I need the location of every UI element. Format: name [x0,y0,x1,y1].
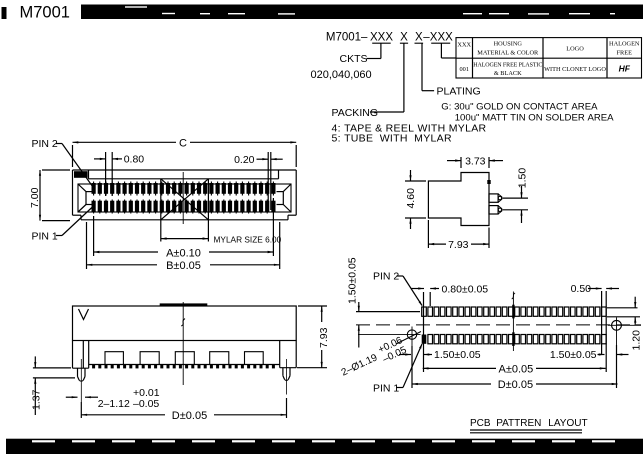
svg-text:XXX: XXX [370,32,393,44]
svg-text:0.80±0.05: 0.80±0.05 [442,283,489,295]
svg-text:HALOGEN: HALOGEN [609,41,640,48]
svg-text:WITH CLONET LOGO: WITH CLONET LOGO [544,66,606,73]
svg-text:0.80: 0.80 [124,154,145,166]
svg-text:1.50±0.05: 1.50±0.05 [347,257,359,304]
svg-text:7.93: 7.93 [318,327,330,348]
svg-text:3.73: 3.73 [465,155,486,167]
svg-text:G: 30u" GOLD ON CONTACT AREA: G: 30u" GOLD ON CONTACT AREA [441,102,598,113]
svg-text:CKTS: CKTS [340,53,368,65]
svg-text:XXX: XXX [457,42,471,49]
svg-text:LOGO: LOGO [566,46,584,53]
svg-text:XXX: XXX [430,32,453,44]
svg-text:A±0.05: A±0.05 [499,363,534,375]
svg-text:PIN 1: PIN 1 [373,383,399,395]
svg-text:A±0.10: A±0.10 [166,247,201,259]
svg-text:0.20: 0.20 [234,154,255,166]
svg-text:1.37: 1.37 [30,389,42,410]
svg-text:PIN 1: PIN 1 [32,231,58,243]
svg-text:HOUSING: HOUSING [494,41,523,48]
svg-text:MYLAR SIZE 6.00: MYLAR SIZE 6.00 [214,234,282,244]
svg-text:2–1.12: 2–1.12 [98,398,130,410]
svg-text:1.50±0.05: 1.50±0.05 [550,349,597,361]
svg-text:C: C [179,138,187,150]
svg-text:5: TUBE WITH MYLAR: 5: TUBE WITH MYLAR [332,133,452,145]
svg-text:B±0.05: B±0.05 [166,260,201,272]
svg-text:D±0.05: D±0.05 [498,379,533,391]
svg-text:HALOGEN FREE PLASTIC: HALOGEN FREE PLASTIC [473,63,542,69]
svg-text:D±0.05: D±0.05 [172,410,207,422]
svg-text:& BLACK: & BLACK [494,70,522,77]
svg-text:1.50: 1.50 [516,168,528,189]
svg-text:LAYOUT: LAYOUT [548,418,587,429]
svg-text:PATTREN: PATTREN [496,418,541,429]
svg-text:001: 001 [460,66,469,73]
svg-text:PLATING: PLATING [437,86,481,98]
svg-text:7.00: 7.00 [29,187,41,208]
svg-text:PACKING: PACKING [332,107,378,119]
svg-text:1.50±0.05: 1.50±0.05 [434,349,481,361]
svg-text:7.93: 7.93 [448,239,469,251]
svg-text:HF: HF [619,64,631,74]
svg-text:PCB: PCB [470,418,491,429]
svg-text:M7001–: M7001– [326,32,368,44]
svg-text:4.60: 4.60 [405,188,417,209]
svg-text:PIN 2: PIN 2 [32,138,58,150]
svg-text:X: X [415,32,423,44]
svg-text:–0.05: –0.05 [133,398,159,410]
svg-text:1.20: 1.20 [631,330,643,351]
svg-text:0.50: 0.50 [571,283,592,295]
svg-text:100u" MATT TIN ON SOLDER AREA: 100u" MATT TIN ON SOLDER AREA [455,113,614,124]
svg-text:FREE: FREE [617,50,633,57]
svg-text:MATERIAL & COLOR: MATERIAL & COLOR [477,50,539,57]
svg-text:M7001: M7001 [20,4,70,22]
svg-text:020,040,060: 020,040,060 [311,69,372,81]
svg-text:X: X [400,32,408,44]
svg-text:PIN 2: PIN 2 [373,271,399,283]
